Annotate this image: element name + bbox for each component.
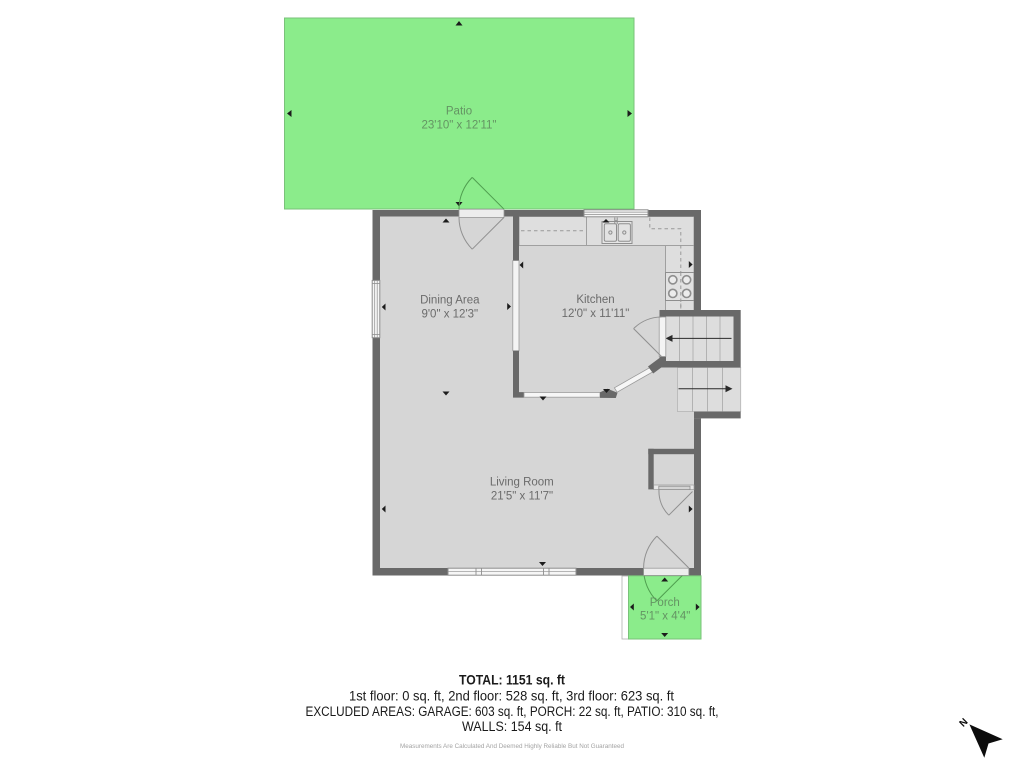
svg-text:Dining Area: Dining Area [420,295,480,307]
svg-text:1st floor: 0 sq. ft, 2nd floor: 1st floor: 0 sq. ft, 2nd floor: 528 sq. … [349,688,674,703]
svg-text:21'5" x 11'7": 21'5" x 11'7" [491,491,553,503]
svg-text:Measurements Are Calculated An: Measurements Are Calculated And Deemed H… [400,743,624,750]
svg-text:TOTAL: 1151 sq. ft: TOTAL: 1151 sq. ft [459,673,565,688]
svg-text:Porch: Porch [650,597,680,609]
svg-text:5'1" x 4'4": 5'1" x 4'4" [640,611,690,623]
svg-text:Patio: Patio [446,106,472,118]
svg-text:12'0" x 11'11": 12'0" x 11'11" [562,308,630,320]
svg-text:EXCLUDED AREAS: GARAGE: 603 sq: EXCLUDED AREAS: GARAGE: 603 sq. ft, PORC… [306,704,719,719]
svg-text:WALLS: 154 sq. ft: WALLS: 154 sq. ft [462,719,562,734]
svg-text:23'10" x 12'11": 23'10" x 12'11" [421,119,496,131]
svg-text:Living Room: Living Room [490,477,554,489]
svg-text:9'0" x 12'3": 9'0" x 12'3" [421,308,478,320]
svg-text:Kitchen: Kitchen [576,294,614,306]
